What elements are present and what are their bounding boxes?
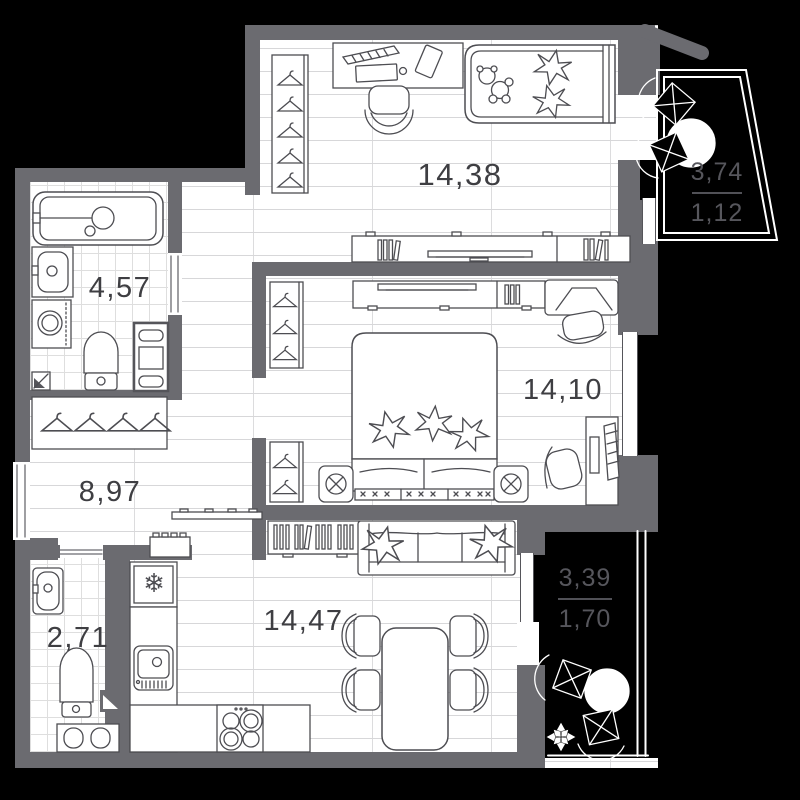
balcony-table (585, 669, 629, 713)
stove (217, 705, 263, 752)
floor-plan: ❄ 14,38 4,57 14,10 8,97 2,71 14,47 3,74 … (0, 0, 800, 800)
area-divider (692, 192, 742, 194)
dining-table (382, 628, 448, 750)
floor-drain (32, 372, 50, 390)
furniture-layer (0, 0, 800, 800)
bedroom-bed (352, 333, 497, 500)
plant-icon (546, 722, 577, 753)
balcony-area-counted: 1,70 (552, 605, 618, 634)
nightstand-lamp-left (319, 466, 353, 502)
area-divider (558, 598, 612, 600)
towel-radiator (134, 323, 168, 391)
bathroom-toilet (84, 332, 118, 390)
hall-console (150, 533, 190, 557)
childrens-desk (333, 43, 463, 88)
childrens-wardrobe (272, 55, 308, 193)
balcony-area-total: 3,39 (552, 564, 618, 593)
wc-sink (33, 568, 63, 614)
nightstand-lamp-right (494, 466, 528, 502)
balcony-area-total: 3,74 (686, 158, 748, 187)
shaft-mark (103, 695, 118, 709)
area-label-balcony-top: 3,74 1,12 (686, 158, 748, 228)
area-label-childrens: 14,38 (405, 157, 515, 193)
childrens-bed (465, 45, 615, 123)
area-label-hallway: 8,97 (70, 476, 150, 509)
bathtub (33, 192, 163, 245)
bedroom-tv-stand (353, 281, 545, 310)
kitchen-sink (134, 646, 173, 690)
wc-radiator (57, 724, 119, 752)
wall-slant (645, 31, 702, 53)
washing-machine (32, 300, 71, 348)
area-label-bathroom: 4,57 (80, 272, 160, 305)
hall-shelf (172, 509, 262, 519)
wc-toilet (60, 648, 93, 717)
bookshelf (268, 521, 360, 557)
balcony-area-counted: 1,12 (686, 199, 748, 228)
bedroom-wardrobe-bottom (270, 442, 303, 502)
bedroom-wardrobe-top (270, 282, 303, 368)
coat-rack (32, 397, 170, 449)
snowflake-icon: ❄ (139, 568, 169, 599)
bedroom-computer-desk (544, 417, 619, 505)
balcony-bottom-furniture (535, 655, 629, 760)
childrens-tv-stand (352, 232, 630, 262)
sofa (358, 520, 515, 575)
childrens-chair (365, 86, 413, 134)
bedroom-vanity-desk (545, 280, 618, 343)
area-label-bedroom: 14,10 (518, 374, 608, 407)
area-label-kitchen: 14,47 (256, 605, 351, 638)
area-label-wc: 2,71 (38, 622, 118, 655)
area-label-balcony-bottom: 3,39 1,70 (552, 564, 618, 634)
bathroom-sink (32, 247, 73, 297)
